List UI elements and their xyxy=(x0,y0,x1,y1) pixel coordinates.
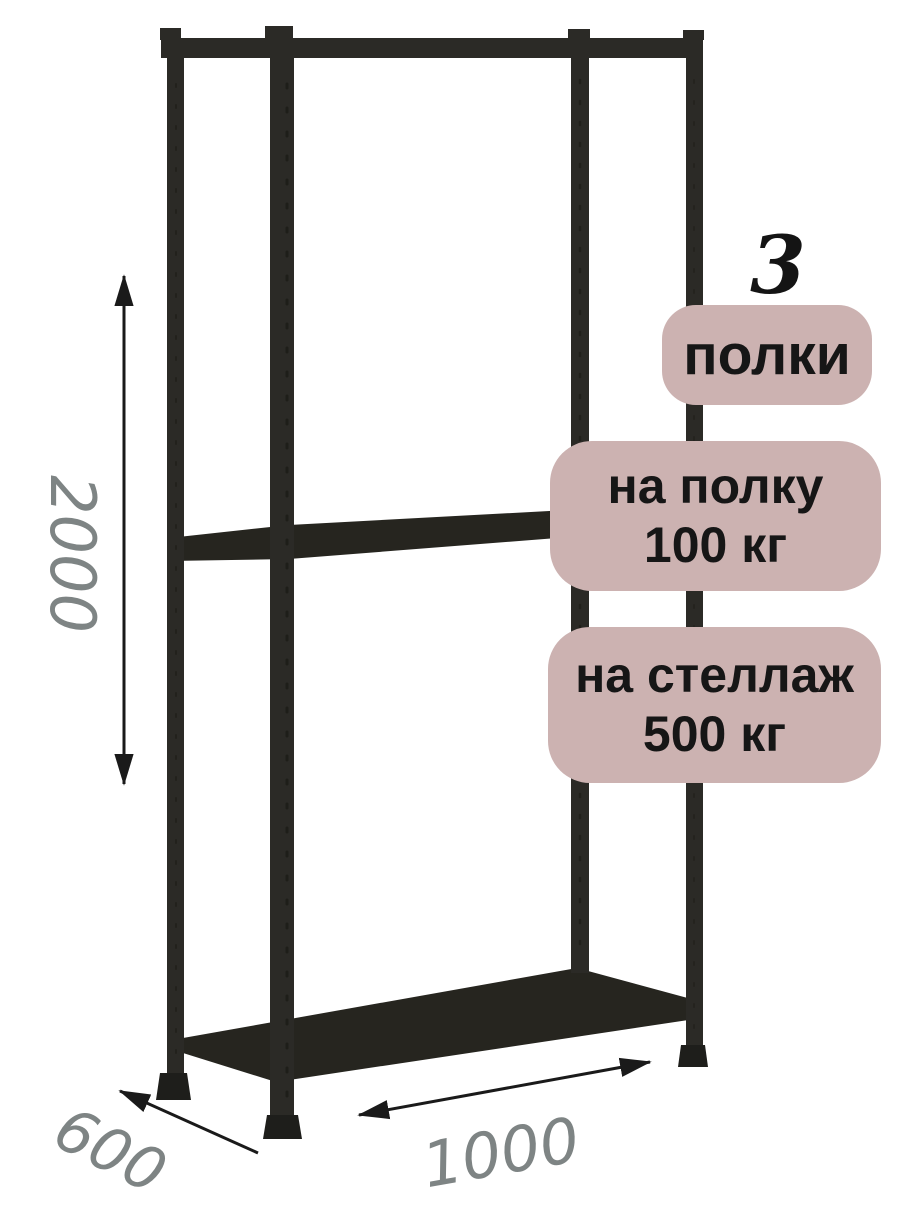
post-cap xyxy=(265,26,293,40)
shelf-count-number: 3 xyxy=(750,225,806,305)
badge-per-shelf-load: на полку 100 кг xyxy=(550,441,881,591)
per-rack-load-value: 500 кг xyxy=(643,705,786,764)
bottom-shelf xyxy=(183,968,695,1082)
per-shelf-load-value: 100 кг xyxy=(644,516,787,575)
foot xyxy=(263,1115,302,1139)
top-beam xyxy=(161,38,703,58)
badge-shelf-count: полки xyxy=(662,305,872,405)
post-cap xyxy=(160,28,181,40)
post-cap xyxy=(568,29,590,40)
per-rack-load-label: на стеллаж xyxy=(575,646,854,705)
width-arrow xyxy=(359,1062,650,1115)
shelf-count-label: полки xyxy=(683,322,851,388)
rack-illustration xyxy=(0,0,900,1200)
foot xyxy=(678,1045,708,1067)
badge-per-rack-load: на стеллаж 500 кг xyxy=(548,627,881,783)
post-cap xyxy=(683,30,704,40)
per-shelf-load-label: на полку xyxy=(608,457,824,516)
product-image: 2000 600 1000 3 полки на полку 100 кг на… xyxy=(0,0,900,1200)
dimension-height-label: 2000 xyxy=(41,475,103,633)
foot xyxy=(156,1073,191,1100)
front-left-post xyxy=(270,38,294,1118)
back-left-post xyxy=(167,38,184,1076)
